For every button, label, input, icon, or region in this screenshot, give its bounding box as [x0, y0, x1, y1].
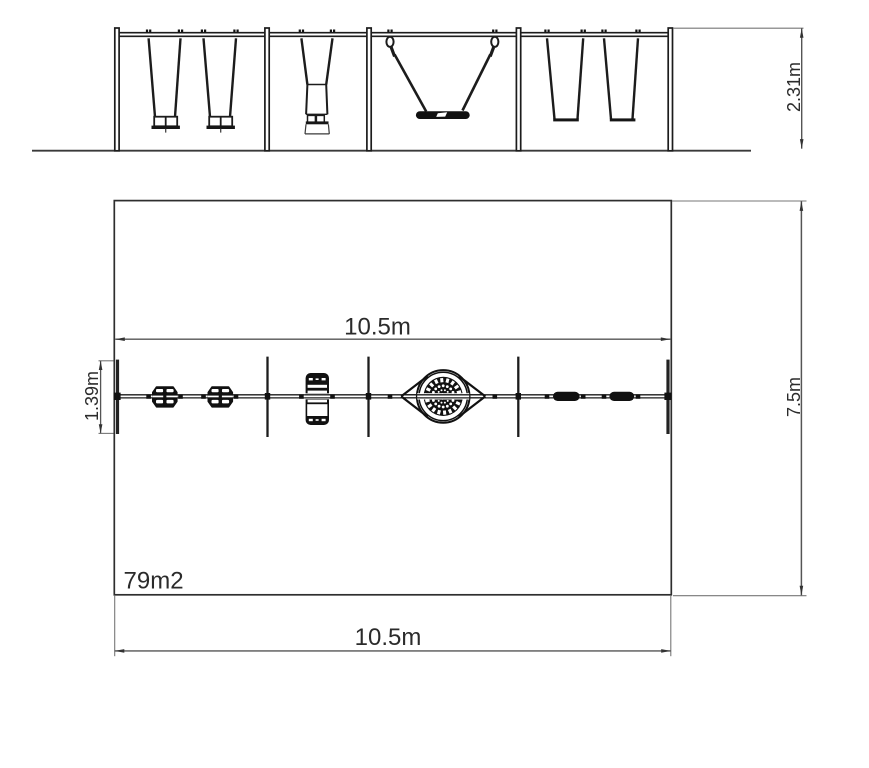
svg-text:10.5m: 10.5m	[344, 314, 411, 341]
svg-text:10.5m: 10.5m	[355, 624, 422, 651]
svg-text:7.5m: 7.5m	[784, 377, 804, 417]
svg-text:79m2: 79m2	[124, 568, 184, 595]
svg-text:2.31m: 2.31m	[784, 62, 804, 112]
svg-text:1.39m: 1.39m	[82, 371, 102, 421]
